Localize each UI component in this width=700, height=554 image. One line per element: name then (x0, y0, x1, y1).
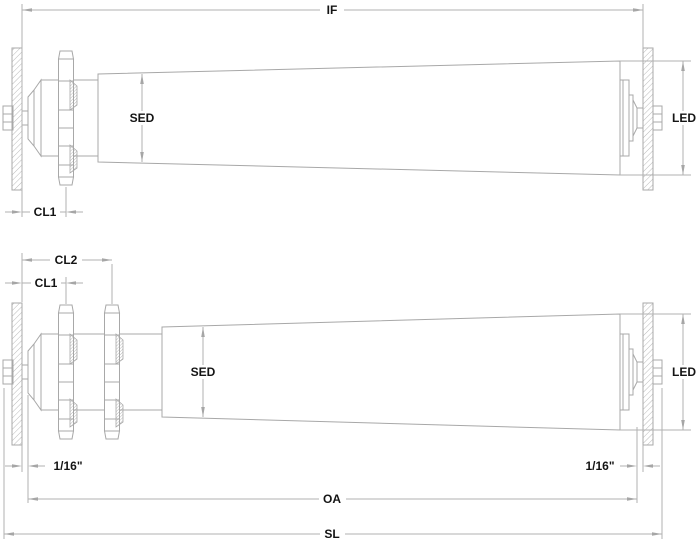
arrowhead (633, 8, 643, 12)
dim-label-sed: SED (130, 111, 155, 125)
arrowhead (643, 464, 653, 468)
arrowhead (22, 258, 32, 262)
dim-cl1-top: CL1 (5, 187, 83, 219)
arrowhead (22, 8, 32, 12)
dim-oa: OA (28, 492, 637, 506)
dim-label-cl1: CL1 (35, 276, 58, 290)
arrowhead (681, 314, 685, 324)
arrowhead (102, 258, 112, 262)
arrowhead (12, 210, 22, 214)
bottom-view-roller-assembly (3, 303, 662, 445)
dim-label-sed: SED (191, 365, 216, 379)
arrowhead (4, 532, 14, 536)
dim-label-gap-right: 1/16" (585, 459, 614, 473)
arrowhead (681, 420, 685, 430)
bottom-tapered-roller-tube (162, 314, 620, 430)
top-right-shaft-end (620, 80, 662, 156)
dim-label-sl: SL (324, 527, 339, 541)
arrowhead (28, 497, 38, 501)
dim-cl1-bottom: CL1 (5, 276, 83, 304)
arrowhead (681, 61, 685, 71)
top-tapered-roller-tube (98, 61, 620, 175)
drawing-page: IF SED LED CL1 (0, 0, 700, 549)
dim-label-led: LED (672, 111, 696, 125)
top-left-frame-wall (12, 48, 22, 190)
arrowhead (66, 210, 76, 214)
arrowhead (66, 281, 76, 285)
top-right-frame-wall (643, 48, 653, 190)
dim-label-if: IF (327, 3, 338, 17)
arrowhead (627, 464, 637, 468)
dim-label-gap-left: 1/16" (53, 459, 82, 473)
top-view-roller-assembly (3, 48, 662, 190)
bottom-right-shaft-end (620, 334, 662, 410)
dim-label-oa: OA (323, 492, 341, 506)
arrowhead (681, 165, 685, 175)
bottom-right-frame-wall (643, 303, 653, 445)
dim-label-cl2: CL2 (55, 253, 78, 267)
arrowhead (627, 497, 637, 501)
dim-label-cl1: CL1 (34, 205, 57, 219)
dim-label-led: LED (672, 365, 696, 379)
tapered-roller-dimension-drawing: IF SED LED CL1 (0, 0, 700, 549)
arrowhead (12, 464, 22, 468)
bottom-left-frame-wall (12, 303, 22, 445)
arrowhead (12, 281, 22, 285)
arrowhead (28, 464, 38, 468)
arrowhead (652, 532, 662, 536)
